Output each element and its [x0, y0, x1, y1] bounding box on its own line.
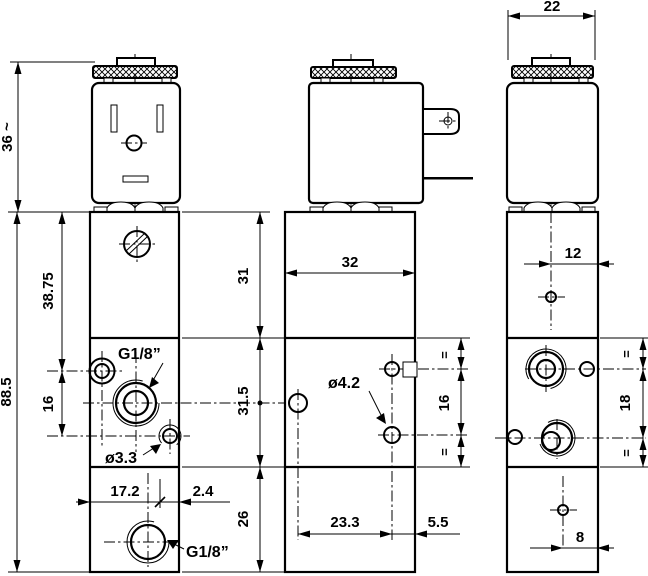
dim-node-dot: [258, 401, 263, 406]
right-body-outline: [507, 212, 598, 572]
cap-top-tab: [333, 60, 373, 67]
equal-mark-top: =: [437, 351, 452, 359]
nut-dome-left: [323, 202, 351, 212]
dim-vent-offset-bottom: 8: [576, 529, 584, 546]
coil-body: [507, 83, 598, 203]
dim-hole-spacing: 16: [436, 395, 453, 412]
dim-hole-offset: 23.3: [330, 514, 359, 531]
dim-vent-offset-top: 12: [565, 245, 582, 262]
nut-dome-right: [351, 202, 379, 212]
dim-upper-section-height: 31: [235, 268, 252, 285]
cap-top-tab: [117, 58, 155, 66]
technical-drawing-page: 36 ~ 88.5 38.75 16 17.2 2.4 G1/8” ø3.3: [0, 0, 648, 576]
knurled-cap: [311, 67, 396, 78]
equal-mark-top: =: [619, 350, 634, 358]
label-mount-hole-dia: ø3.3: [105, 450, 137, 467]
dim-bottom-port-offset: 17.2: [110, 483, 139, 500]
dim-bottom-port-edge-offset: 2.4: [193, 483, 215, 500]
front-coil: [92, 54, 180, 212]
dim-hole-edge-offset: 5.5: [428, 514, 449, 531]
dim-middle-section-height: 31.5: [235, 386, 252, 415]
valve-dimension-drawing: 36 ~ 88.5 38.75 16 17.2 2.4 G1/8” ø3.3: [0, 0, 648, 576]
dim-port-spacing: 16: [40, 396, 57, 413]
nut-dome-left: [524, 202, 552, 212]
dim-port-spacing: 18: [617, 395, 634, 412]
label-pilot-hole-dia: ø4.2: [328, 375, 360, 392]
coil-body: [309, 83, 423, 203]
dim-coil-height: 36 ~: [0, 122, 16, 152]
cap-top-tab: [532, 58, 570, 66]
nut-dome-right: [552, 202, 580, 212]
nut-dome-left: [107, 202, 135, 212]
label-side-port-thread: G1/8”: [118, 346, 161, 363]
dim-upper-port-offset: 38.75: [40, 272, 57, 310]
equal-mark-bottom: =: [437, 448, 452, 456]
dim-body-width: 32: [342, 254, 359, 271]
dim-body-depth: 22: [544, 0, 561, 15]
knurled-cap: [512, 66, 593, 78]
spade-terminal: [423, 177, 473, 180]
knurled-cap: [93, 66, 177, 78]
dim-total-height: 88.5: [0, 377, 15, 406]
dim-lower-section-height: 26: [235, 511, 252, 528]
nut-dome-right: [135, 202, 163, 212]
edge-tab: [403, 362, 417, 377]
label-bottom-port-thread: G1/8”: [186, 544, 229, 561]
equal-mark-bottom: =: [619, 449, 634, 457]
